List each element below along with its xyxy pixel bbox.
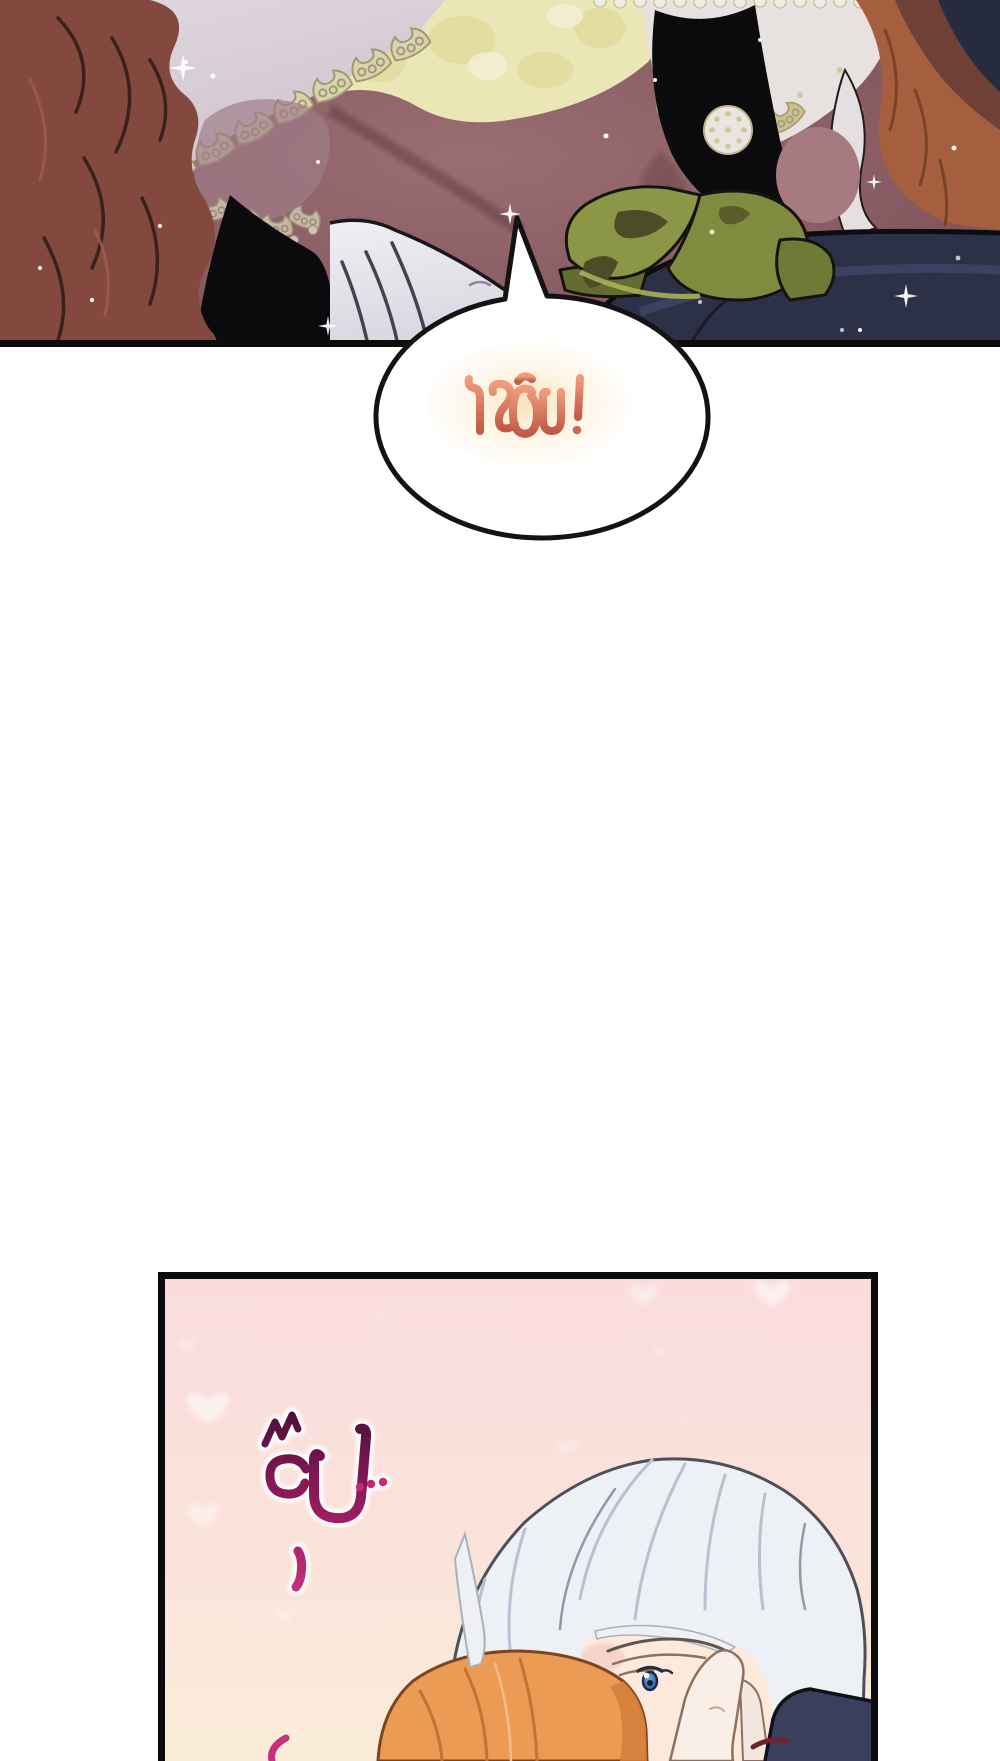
speech-bubble-art <box>330 185 730 545</box>
exclamation-dot <box>573 426 582 435</box>
comic-page: โรอัน! <box>0 0 1000 1761</box>
bubble-glow <box>427 342 631 466</box>
bottom-comic-panel: จุ๊บ... <box>158 1272 878 1761</box>
bottom-panel-art <box>165 1279 871 1761</box>
lace-medallion <box>704 106 752 154</box>
speech-bubble: โรอัน! <box>330 185 730 545</box>
